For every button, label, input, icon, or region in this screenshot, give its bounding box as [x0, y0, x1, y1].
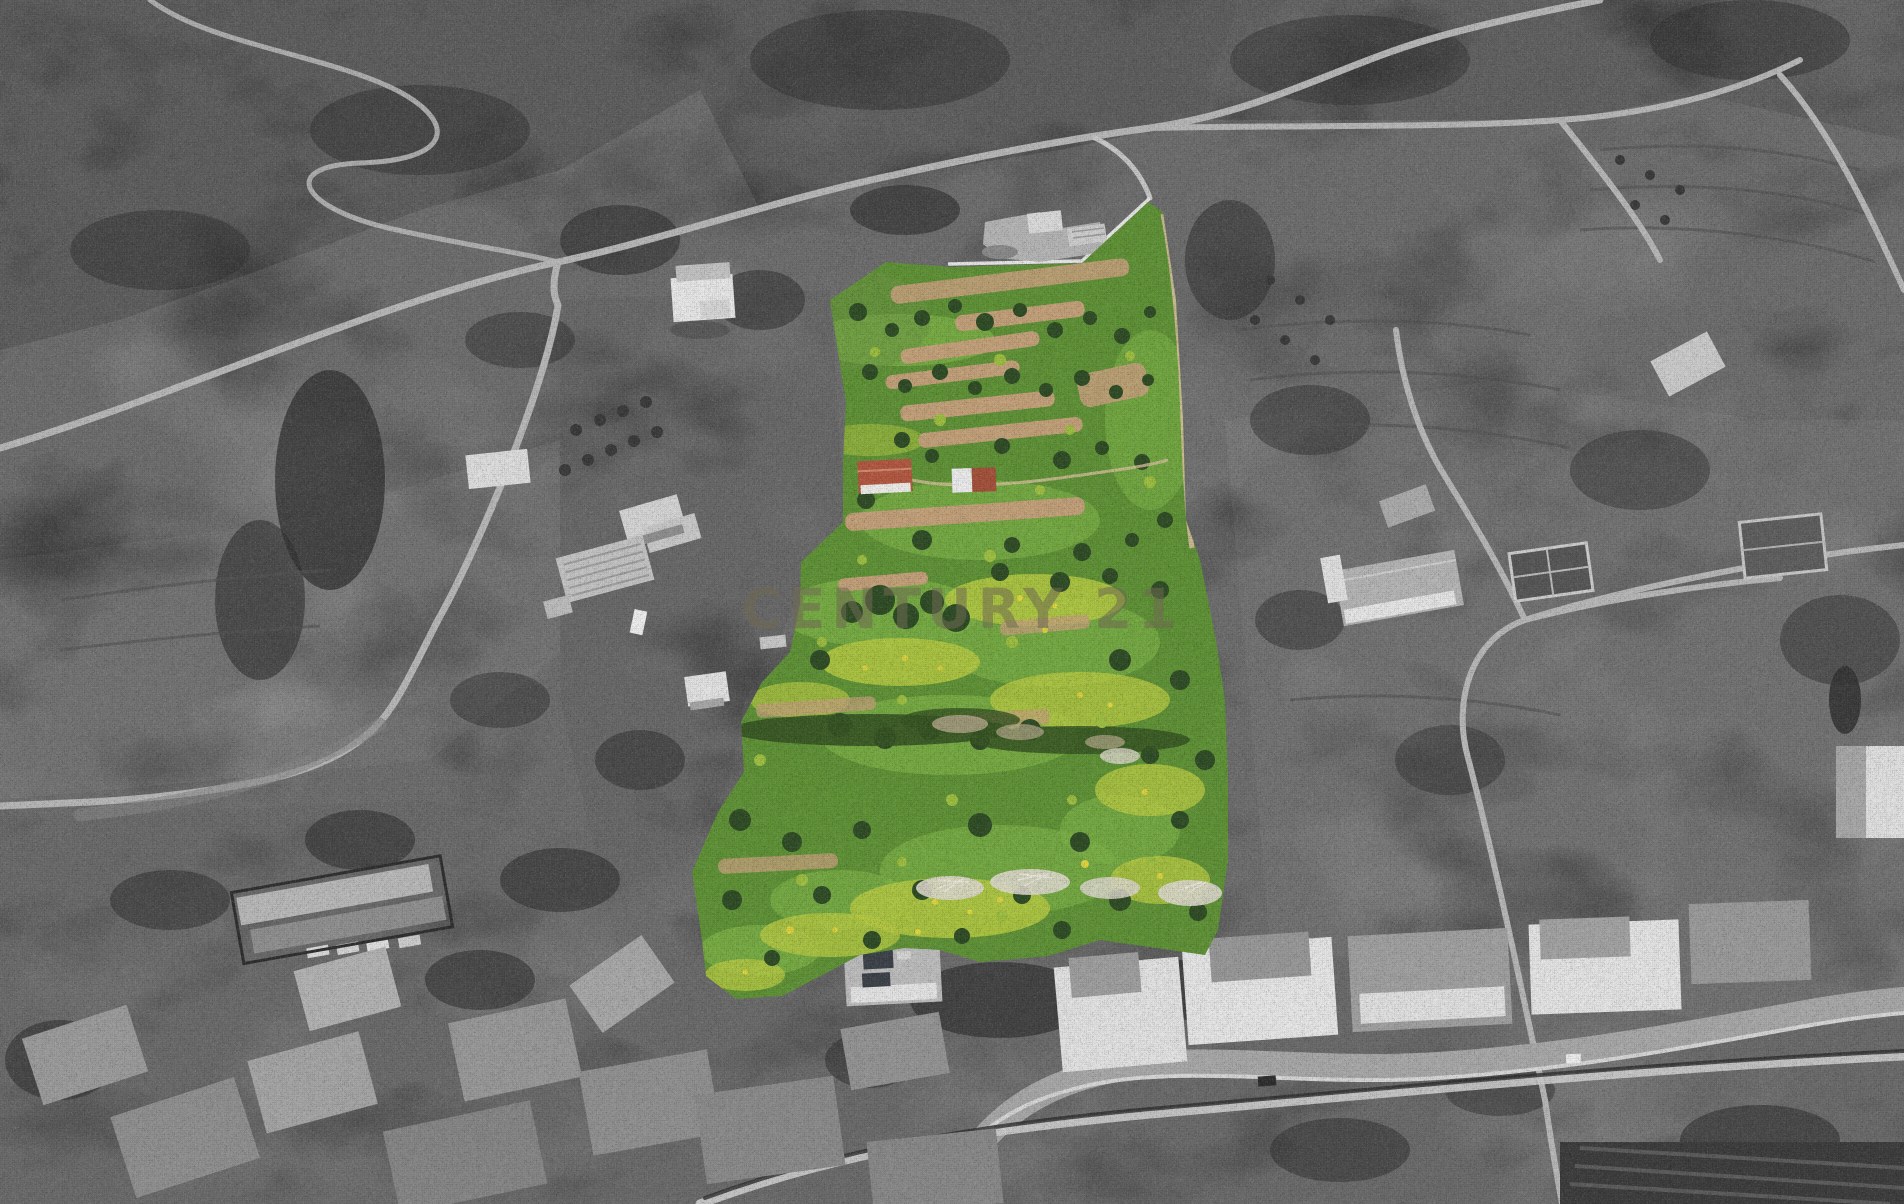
watermark-text: CENTURY 21 [742, 577, 1183, 641]
aerial-photo: CENTURY 21 [0, 0, 1904, 1204]
watermark: CENTURY 21 [742, 577, 1183, 641]
aerial-photo-svg: CENTURY 21 [0, 0, 1904, 1204]
